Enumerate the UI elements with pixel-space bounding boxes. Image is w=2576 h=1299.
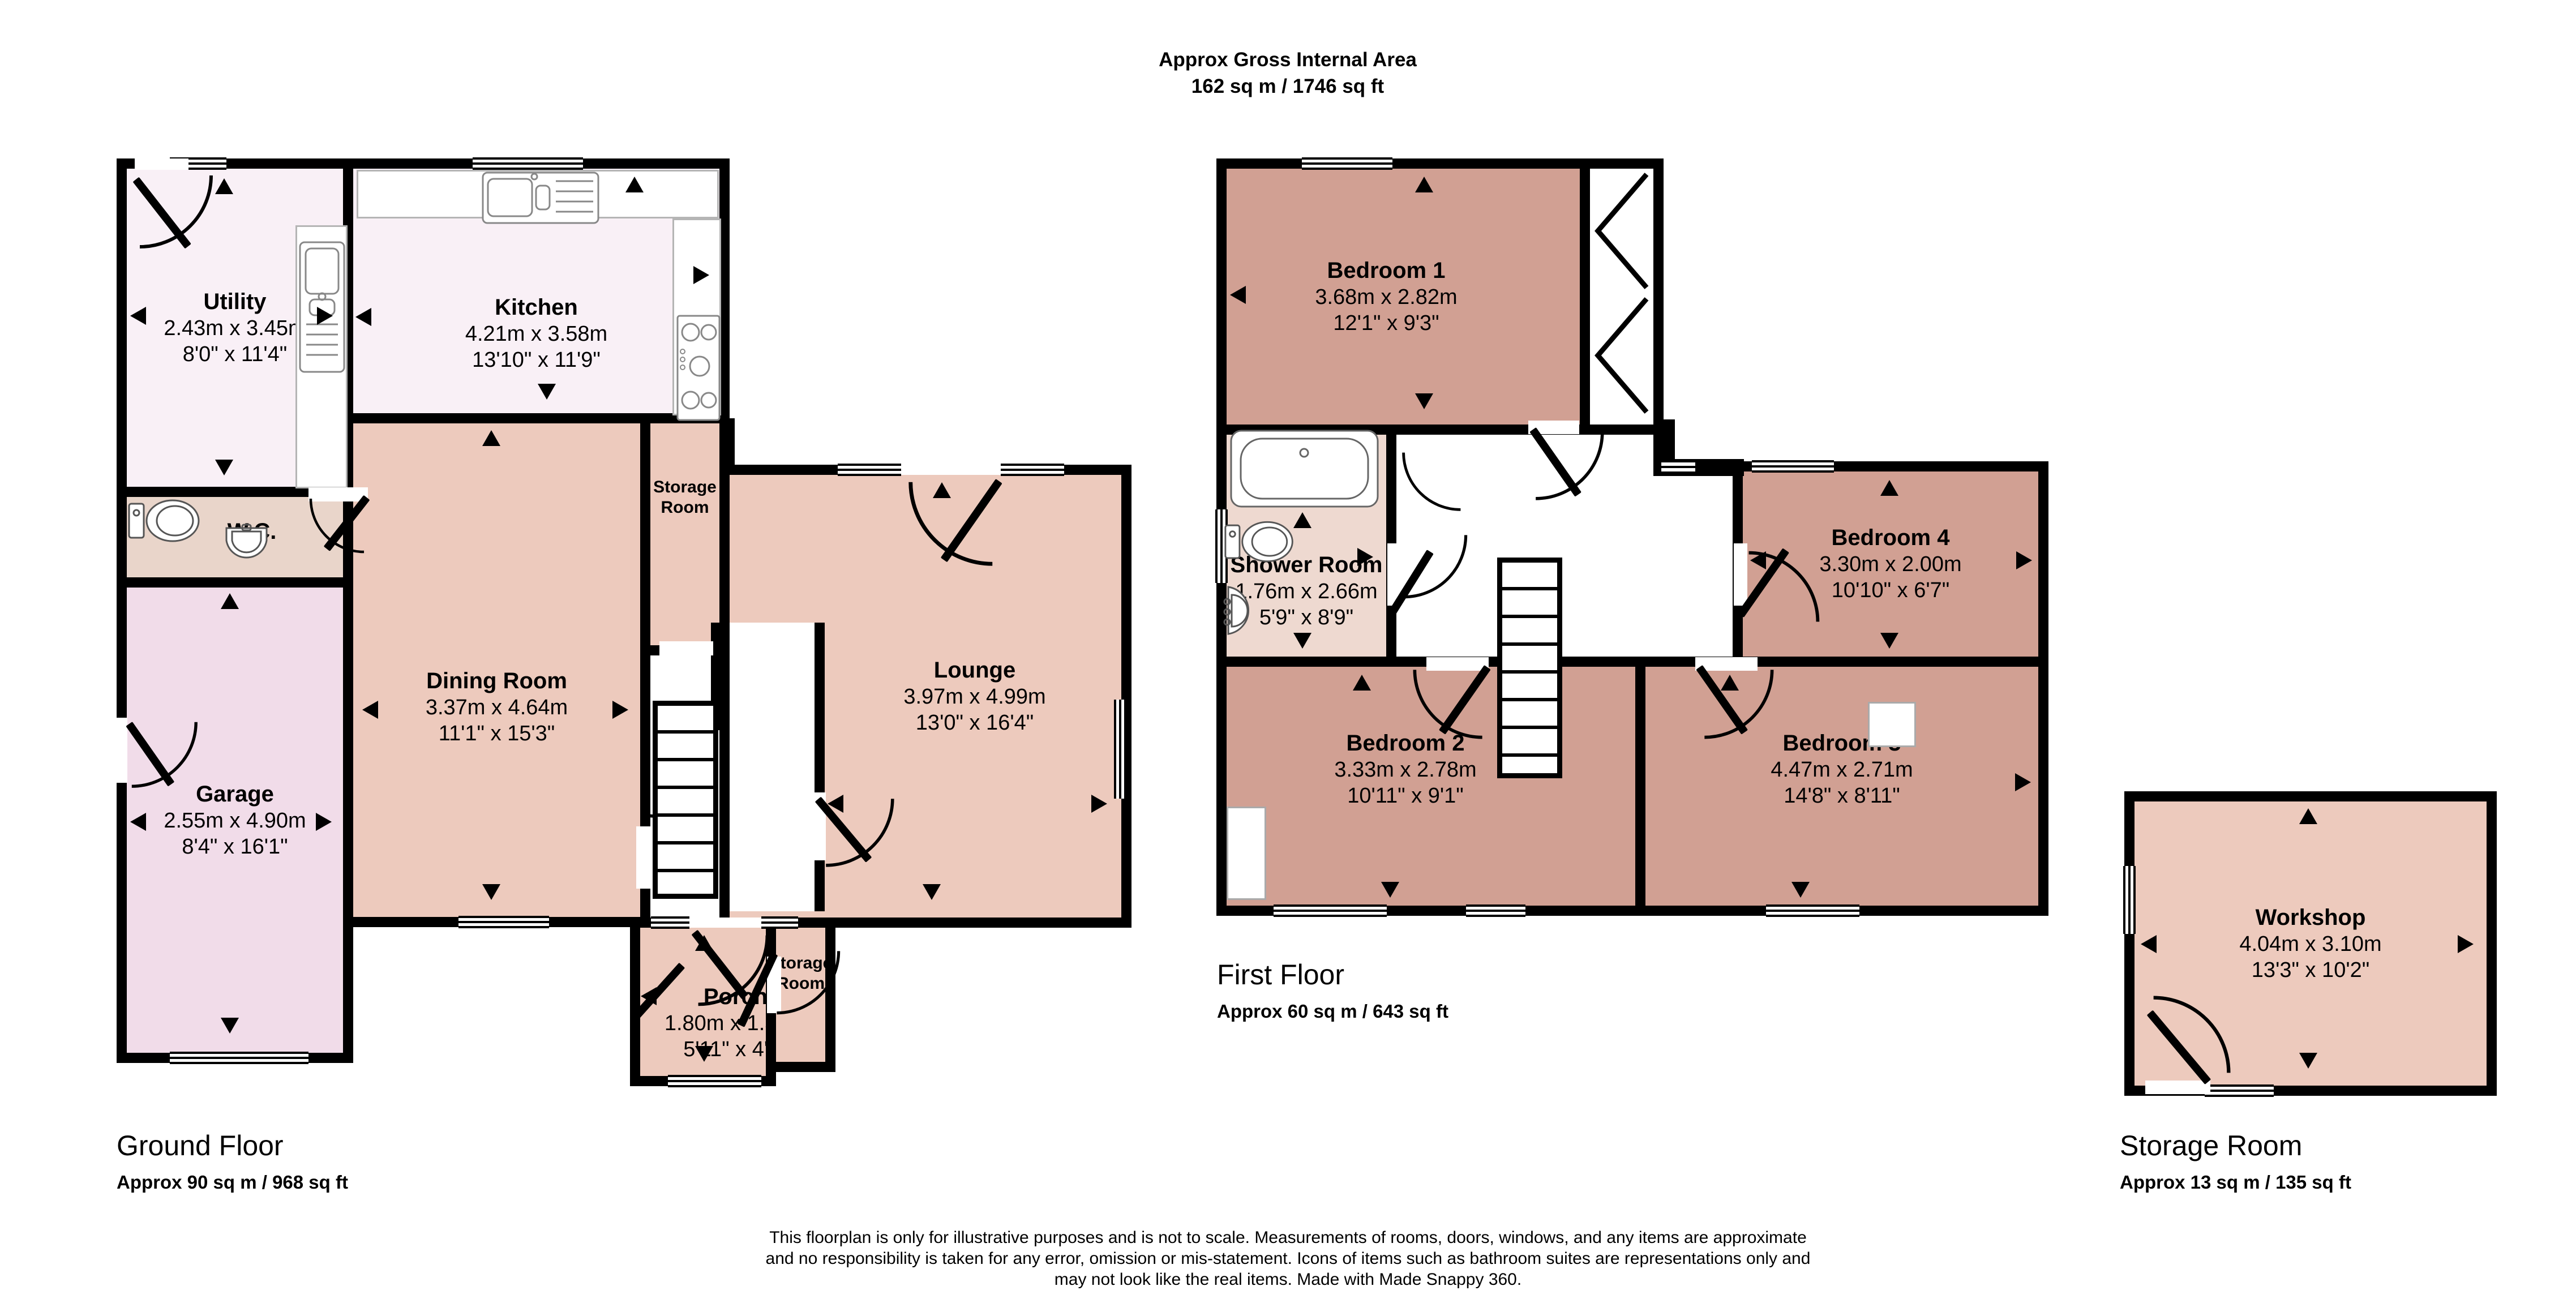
staircase-first xyxy=(1497,558,1562,778)
basin-icon xyxy=(220,524,273,580)
wardrobe-zigzag-icon xyxy=(1590,169,1653,425)
room-name: Storage Room xyxy=(650,423,719,518)
room-dim-imperial: 10'11" x 9'1" xyxy=(1334,783,1476,809)
measure-arrow-down-icon xyxy=(695,1046,713,1062)
measure-arrow-right-icon xyxy=(316,813,332,831)
measure-arrow-up-icon xyxy=(1415,177,1433,192)
measure-arrow-up-icon xyxy=(1293,512,1311,528)
front-door-gap xyxy=(689,918,761,928)
floor-name: Storage Room xyxy=(2120,1129,2351,1162)
room-dim-metric: 3.30m x 2.00m xyxy=(1819,551,1961,577)
room-garage: Garage 2.55m x 4.90m 8'4" x 16'1" xyxy=(122,582,348,1058)
basin-icon xyxy=(1221,580,1270,642)
measure-arrow-down-icon xyxy=(1293,633,1311,649)
room-bedroom1: Bedroom 1 3.68m x 2.82m 12'1" x 9'3" xyxy=(1221,164,1585,430)
window xyxy=(761,916,798,929)
toilet-icon xyxy=(1224,518,1297,566)
door-gap xyxy=(659,641,713,655)
window xyxy=(1001,464,1064,476)
measure-arrow-up-icon xyxy=(215,178,233,194)
storage-room-caption: Storage Room Approx 13 sq m / 135 sq ft xyxy=(2120,1129,2351,1195)
room-name: Kitchen xyxy=(465,294,607,321)
measure-arrow-left-icon xyxy=(1230,286,1246,304)
room-dim-metric: 3.37m x 4.64m xyxy=(426,694,568,721)
bedroom1-wardrobe xyxy=(1585,164,1658,430)
room-dim-metric: 4.47m x 2.71m xyxy=(1771,757,1913,783)
measure-arrow-up-icon xyxy=(1880,480,1898,496)
floor-name: Ground Floor xyxy=(117,1129,348,1162)
room-dim-imperial: 8'4" x 16'1" xyxy=(164,834,306,860)
disclaimer-line-1: This floorplan is only for illustrative … xyxy=(0,1227,2576,1248)
measure-arrow-down-icon xyxy=(538,384,556,400)
room-dim-imperial: 13'3" x 10'2" xyxy=(2239,957,2381,983)
garage-door-band xyxy=(170,1052,308,1064)
room-dim-imperial: 14'8" x 8'11" xyxy=(1771,783,1913,809)
room-dim-metric: 4.04m x 3.10m xyxy=(2239,931,2381,957)
measure-arrow-down-icon xyxy=(1415,393,1433,409)
floor-area: Approx 90 sq m / 968 sq ft xyxy=(117,1170,348,1195)
door-gap xyxy=(901,465,1001,475)
measure-arrow-up-icon xyxy=(1721,675,1739,691)
toilet-icon xyxy=(127,497,204,545)
room-dim-metric: 3.33m x 2.78m xyxy=(1334,757,1476,783)
measure-arrow-down-icon xyxy=(1880,633,1898,649)
measure-arrow-right-icon xyxy=(2015,773,2031,791)
kitchen-sink-icon xyxy=(481,171,600,225)
door-gap xyxy=(2145,1081,2210,1094)
window xyxy=(473,157,583,170)
room-name: Lounge xyxy=(903,657,1045,684)
room-storage-upper: Storage Room xyxy=(645,418,725,650)
measure-arrow-right-icon xyxy=(693,266,709,284)
title-line-2: 162 sq m / 1746 sq ft xyxy=(722,73,1854,100)
room-dim-metric: 3.68m x 2.82m xyxy=(1315,284,1457,310)
window xyxy=(2205,1084,2274,1097)
window xyxy=(651,916,689,929)
room-dining: Dining Room 3.37m x 4.64m 11'1" x 15'3" xyxy=(348,418,645,922)
measure-arrow-down-icon xyxy=(1791,882,1810,898)
wall-stub xyxy=(719,418,735,475)
room-dim-imperial: 8'0" x 11'4" xyxy=(164,341,306,367)
ground-floor-caption: Ground Floor Approx 90 sq m / 968 sq ft xyxy=(117,1129,348,1195)
window xyxy=(1302,157,1392,170)
disclaimer-line-3: may not look like the real items. Made w… xyxy=(0,1269,2576,1290)
door-arc xyxy=(903,474,1000,572)
room-name: Dining Room xyxy=(426,668,568,694)
measure-arrow-right-icon xyxy=(1357,548,1373,566)
gross-internal-area-title: Approx Gross Internal Area 162 sq m / 17… xyxy=(722,46,1854,100)
measure-arrow-right-icon xyxy=(2016,551,2032,569)
measure-arrow-up-icon xyxy=(221,593,239,609)
door-arc xyxy=(771,945,845,1019)
measure-arrow-right-icon xyxy=(612,701,628,719)
window xyxy=(1114,700,1126,799)
measure-arrow-up-icon xyxy=(482,430,500,446)
window xyxy=(2123,866,2136,934)
title-line-1: Approx Gross Internal Area xyxy=(722,46,1854,73)
window xyxy=(1466,904,1525,917)
measure-arrow-left-icon xyxy=(355,308,371,326)
floorplan-canvas: Approx Gross Internal Area 162 sq m / 17… xyxy=(0,0,2576,1299)
measure-arrow-down-icon xyxy=(1381,882,1399,898)
measure-arrow-right-icon xyxy=(1091,795,1107,813)
first-floor-caption: First Floor Approx 60 sq m / 643 sq ft xyxy=(1217,958,1448,1024)
room-dim-imperial: 11'1" x 15'3" xyxy=(426,721,568,747)
measure-arrow-left-icon xyxy=(828,795,843,813)
bedroom3-recess xyxy=(1868,702,1916,747)
window xyxy=(1752,460,1834,473)
measure-arrow-down-icon xyxy=(923,884,941,900)
measure-arrow-up-icon xyxy=(625,177,644,192)
room-dim-imperial: 10'10" x 6'7" xyxy=(1819,577,1961,603)
room-name: Bedroom 4 xyxy=(1819,525,1961,551)
measure-arrow-right-icon xyxy=(317,307,333,325)
door-arc xyxy=(1398,447,1466,515)
room-dim-imperial: 13'10" x 11'9" xyxy=(465,347,607,373)
hallway-area xyxy=(730,623,815,911)
measure-arrow-left-icon xyxy=(2141,935,2157,953)
room-dim-metric: 3.97m x 4.99m xyxy=(903,684,1045,710)
measure-arrow-down-icon xyxy=(482,884,500,900)
window xyxy=(838,464,901,476)
measure-arrow-down-icon xyxy=(221,1018,239,1034)
measure-arrow-up-icon xyxy=(933,482,951,498)
measure-arrow-up-icon xyxy=(1353,675,1371,691)
door-arc xyxy=(133,169,218,254)
measure-arrow-down-icon xyxy=(2299,1053,2317,1069)
measure-arrow-left-icon xyxy=(362,701,378,719)
measure-arrow-left-icon xyxy=(130,307,146,325)
room-dim-metric: 4.21m x 3.58m xyxy=(465,321,607,347)
staircase-ground xyxy=(653,701,718,899)
room-name: Bedroom 1 xyxy=(1315,258,1457,284)
measure-arrow-up-icon xyxy=(2299,808,2317,824)
window xyxy=(458,916,549,928)
bedroom2-recess xyxy=(1227,807,1266,900)
measure-arrow-left-icon xyxy=(1750,551,1766,569)
measure-arrow-right-icon xyxy=(2458,935,2474,953)
window xyxy=(668,1075,761,1087)
floor-name: First Floor xyxy=(1217,958,1448,991)
window xyxy=(1766,904,1859,917)
room-dim-imperial: 12'1" x 9'3" xyxy=(1315,310,1457,336)
measure-arrow-up-icon xyxy=(695,935,713,951)
measure-arrow-left-icon xyxy=(130,813,146,831)
room-dim-metric: 2.43m x 3.45m xyxy=(164,315,306,341)
disclaimer-line-2: and no responsibility is taken for any e… xyxy=(0,1248,2576,1269)
window xyxy=(1274,904,1387,917)
room-name: Utility xyxy=(164,289,306,315)
door-gap xyxy=(135,158,188,170)
disclaimer: This floorplan is only for illustrative … xyxy=(0,1227,2576,1290)
floor-area: Approx 13 sq m / 135 sq ft xyxy=(2120,1170,2351,1195)
measure-arrow-down-icon xyxy=(215,460,233,475)
hob-icon xyxy=(676,314,721,422)
room-name: Workshop xyxy=(2239,904,2381,931)
bath-icon xyxy=(1229,429,1379,508)
room-dim-imperial: 13'0" x 16'4" xyxy=(903,710,1045,736)
room-dim-metric: 2.55m x 4.90m xyxy=(164,808,306,834)
window xyxy=(1661,460,1695,474)
measure-arrow-left-icon xyxy=(641,987,657,1005)
floor-area: Approx 60 sq m / 643 sq ft xyxy=(1217,999,1448,1024)
